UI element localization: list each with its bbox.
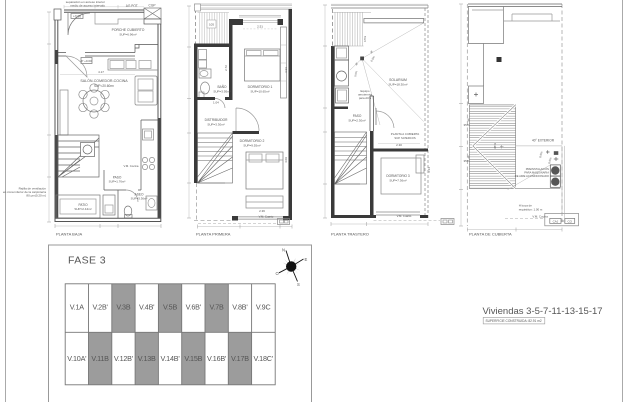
svg-text:SUP=1.76m²: SUP=1.76m² (109, 180, 126, 184)
svg-text:V.8B': V.8B' (232, 303, 248, 312)
svg-text:para ACS: para ACS (359, 96, 371, 100)
svg-text:35%: 35% (464, 159, 470, 163)
svg-text:DISTRIBUIDOR: DISTRIBUIDOR (205, 118, 229, 122)
svg-text:80 μm(0.20 m): 80 μm(0.20 m) (26, 194, 46, 198)
svg-text:SUP=3.36m²: SUP=3.36m² (131, 197, 148, 201)
svg-text:P +0.00: P +0.00 (81, 59, 92, 63)
svg-text:3.93: 3.93 (284, 67, 288, 73)
svg-text:PLANTA TRASTERO: PLANTA TRASTERO (331, 232, 369, 237)
svg-text:V.M. Cocina: V.M. Cocina (124, 164, 139, 168)
svg-text:SUP=3.95m²: SUP=3.95m² (213, 90, 230, 94)
svg-text:V.1A: V.1A (70, 303, 85, 312)
svg-text:V.4B': V.4B' (139, 303, 155, 312)
svg-text:AG.POT.: AG.POT. (126, 4, 139, 8)
svg-text:35%: 35% (493, 143, 497, 149)
svg-text:0.5%: 0.5% (363, 35, 367, 42)
svg-text:PLANTA DE CUBIERTA: PLANTA DE CUBIERTA (469, 232, 512, 237)
svg-text:SUP=7.36m²: SUP=7.36m² (389, 179, 406, 183)
svg-text:40° EXTERIOR: 40° EXTERIOR (532, 139, 555, 143)
svg-text:V.M. Cuarto: V.M. Cuarto (259, 214, 274, 218)
svg-text:V.13B: V.13B (138, 354, 156, 363)
svg-text:2.36: 2.36 (259, 209, 265, 213)
svg-text:3.14: 3.14 (427, 167, 431, 173)
svg-text:SUPERFICIE CONSTRUIDA: 82.91 m: SUPERFICIE CONSTRUIDA: 82.91 m2 (486, 319, 542, 323)
svg-text:DORMITORIO 3: DORMITORIO 3 (386, 174, 410, 178)
svg-text:SUP=3.30m²: SUP=3.30m² (207, 123, 224, 127)
svg-text:V.9C: V.9C (256, 303, 271, 312)
svg-text:V.14B': V.14B' (160, 354, 180, 363)
svg-text:CAJ: CAJ (553, 219, 559, 223)
svg-text:1.04: 1.04 (213, 101, 219, 105)
svg-text:SUP=18.30m²: SUP=18.30m² (389, 83, 408, 87)
svg-text:V.6B': V.6B' (186, 303, 202, 312)
svg-text:SUP=10.65m²: SUP=10.65m² (251, 90, 270, 94)
svg-text:2.72: 2.72 (224, 65, 228, 71)
svg-text:SUP=2.44m²: SUP=2.44m² (74, 207, 91, 211)
svg-text:BAÑO: BAÑO (217, 84, 227, 89)
svg-text:E: E (305, 257, 308, 262)
svg-text:SOLARIUM: SOLARIUM (389, 78, 407, 82)
svg-text:PLANTA BAJA: PLANTA BAJA (56, 232, 82, 237)
svg-text:CGP: CGP (149, 4, 156, 8)
svg-text:PLANTA PRIMERA: PLANTA PRIMERA (196, 232, 231, 237)
svg-text:35%: 35% (464, 123, 470, 127)
svg-text:V.5B: V.5B (163, 303, 178, 312)
svg-text:DORMITORIO 1: DORMITORIO 1 (248, 85, 273, 89)
svg-text:V.18C': V.18C' (253, 354, 273, 363)
svg-text:S: S (297, 282, 300, 287)
svg-text:V.7B: V.7B (210, 303, 225, 312)
svg-text:4.09: 4.09 (284, 157, 288, 163)
svg-text:PARA MAQUINARIA: PARA MAQUINARIA (524, 171, 549, 175)
svg-text:V.2B': V.2B' (92, 303, 108, 312)
svg-text:V.3B: V.3B (116, 303, 131, 312)
svg-text:FASE 3: FASE 3 (68, 255, 106, 267)
svg-text:V.17B: V.17B (231, 354, 249, 363)
svg-text:2.51: 2.51 (257, 25, 263, 29)
svg-text:SUP=9.55m²: SUP=9.55m² (243, 144, 260, 148)
svg-text:V.M. Cocina: V.M. Cocina (532, 215, 548, 219)
svg-text:PASO: PASO (353, 114, 362, 118)
svg-text:SALÓN-COMEDOR-COCINA: SALÓN-COMEDOR-COCINA (80, 78, 128, 83)
svg-text:SUP=6.96m²: SUP=6.96m² (119, 33, 136, 37)
svg-text:V.16B': V.16B' (207, 354, 227, 363)
svg-text:N: N (282, 248, 285, 253)
svg-text:SUP=2.30m²: SUP=2.30m² (348, 119, 365, 123)
svg-text:SUP. SATERCOS: SUP. SATERCOS (394, 136, 415, 140)
svg-text:V.11B: V.11B (91, 354, 109, 363)
svg-text:Viviendas 3-5-7-11-13-15-17: Viviendas 3-5-7-11-13-15-17 (483, 306, 603, 317)
svg-text:+0.00: +0.00 (73, 15, 81, 19)
svg-text:105: 105 (209, 23, 214, 27)
svg-text:requisition: 1.00 m: requisition: 1.00 m (519, 208, 543, 212)
svg-text:V.10A': V.10A' (67, 354, 87, 363)
svg-text:CO: CO (567, 219, 572, 223)
svg-text:DORMITORIO 2: DORMITORIO 2 (240, 139, 265, 143)
svg-text:4.17: 4.17 (98, 70, 104, 74)
svg-text:V.M. Cuarto: V.M. Cuarto (397, 214, 412, 218)
svg-text:V.15B: V.15B (184, 354, 202, 363)
svg-text:DE AIRE ACONDICIONADO: DE AIRE ACONDICIONADO (515, 174, 549, 178)
svg-text:PLANTA A CUBIERTA: PLANTA A CUBIERTA (391, 132, 420, 136)
svg-text:V.12B': V.12B' (114, 354, 134, 363)
svg-text:PORCHE CUBIERTO: PORCHE CUBIERTO (112, 28, 145, 32)
